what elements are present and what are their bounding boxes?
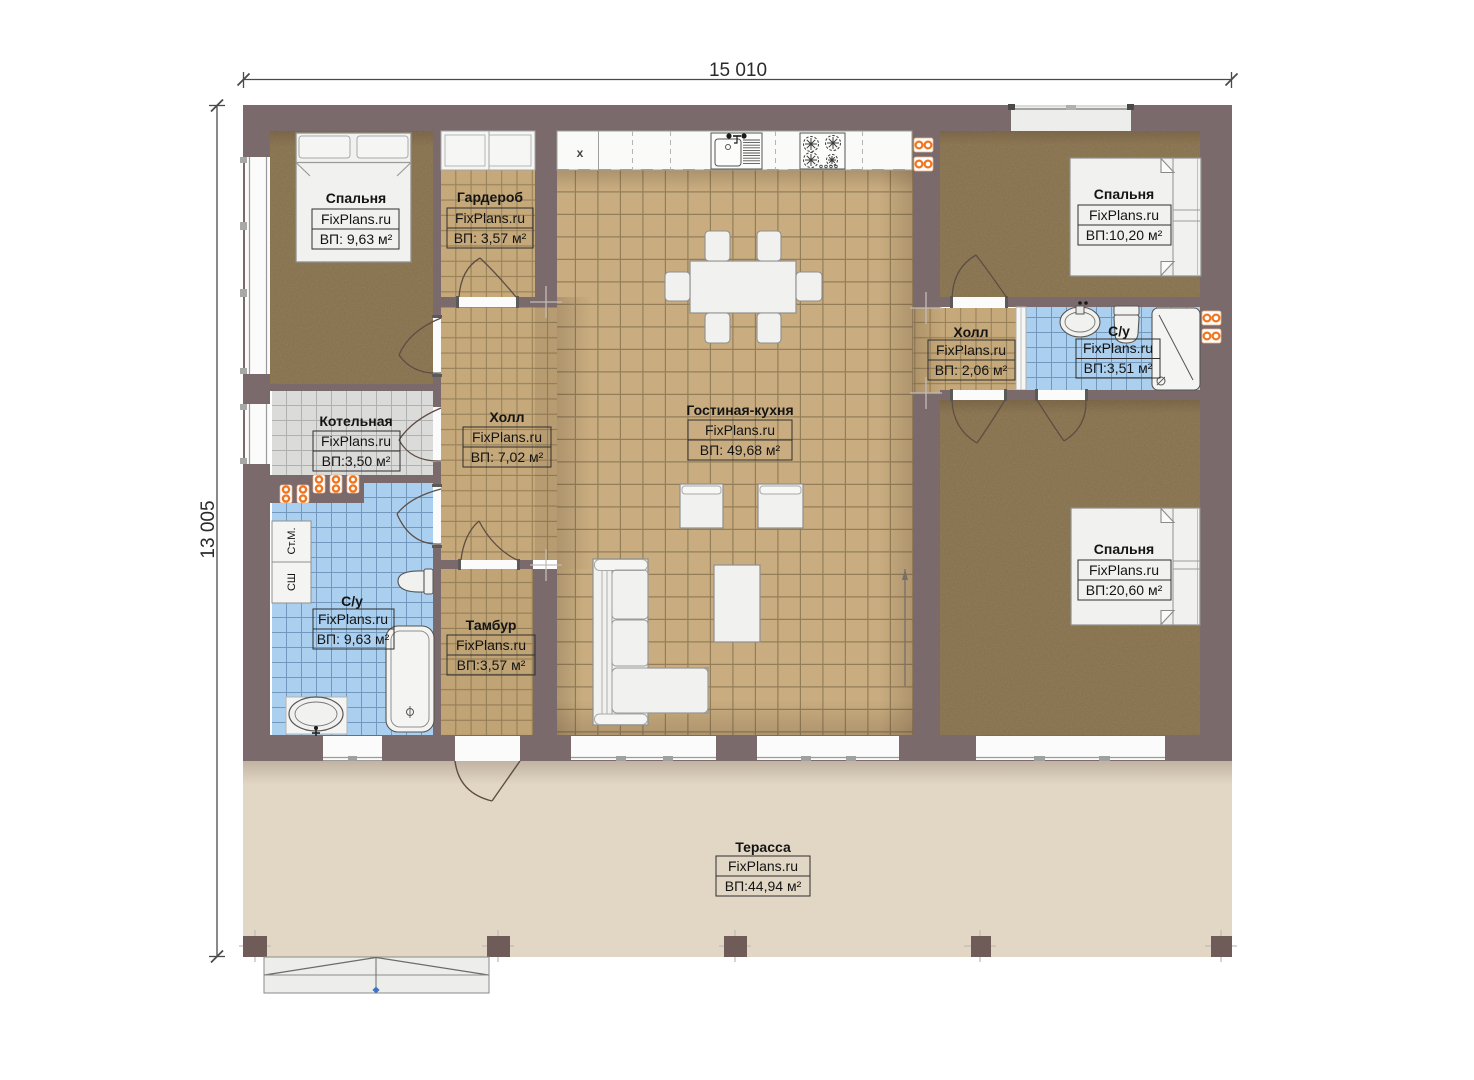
svg-text:FixPlans.ru: FixPlans.ru	[936, 342, 1006, 358]
svg-text:FixPlans.ru: FixPlans.ru	[321, 211, 391, 227]
svg-text:ВП:3,50 м²: ВП:3,50 м²	[322, 453, 391, 469]
svg-text:FixPlans.ru: FixPlans.ru	[455, 210, 525, 226]
svg-text:С/у: С/у	[341, 593, 363, 609]
svg-text:FixPlans.ru: FixPlans.ru	[318, 611, 388, 627]
svg-text:15 010: 15 010	[709, 60, 767, 81]
svg-text:Холл: Холл	[489, 409, 524, 425]
svg-text:ВП:44,94 м²: ВП:44,94 м²	[725, 878, 802, 894]
svg-text:ВП: 9,63 м²: ВП: 9,63 м²	[320, 231, 393, 247]
svg-text:Терасса: Терасса	[735, 839, 791, 855]
svg-text:ВП: 9,63 м²: ВП: 9,63 м²	[317, 631, 390, 647]
svg-text:FixPlans.ru: FixPlans.ru	[705, 422, 775, 438]
svg-text:ВП:3,51 м²: ВП:3,51 м²	[1084, 360, 1153, 376]
svg-text:Спальня: Спальня	[326, 190, 386, 206]
svg-text:Ст.М.: Ст.М.	[286, 527, 298, 554]
svg-text:ВП:3,57 м²: ВП:3,57 м²	[457, 657, 526, 673]
svg-text:FixPlans.ru: FixPlans.ru	[1089, 207, 1159, 223]
svg-text:FixPlans.ru: FixPlans.ru	[1089, 562, 1159, 578]
svg-text:СШ: СШ	[286, 573, 298, 591]
svg-text:С/у: С/у	[1108, 323, 1130, 339]
svg-text:x: x	[577, 146, 584, 160]
svg-text:ВП:10,20 м²: ВП:10,20 м²	[1086, 227, 1163, 243]
svg-text:Холл: Холл	[953, 324, 988, 340]
svg-text:ВП: 2,06 м²: ВП: 2,06 м²	[935, 362, 1008, 378]
svg-text:ВП:20,60 м²: ВП:20,60 м²	[1086, 582, 1163, 598]
svg-text:Гардероб: Гардероб	[457, 189, 524, 205]
svg-text:ВП: 49,68 м²: ВП: 49,68 м²	[700, 442, 781, 458]
svg-text:FixPlans.ru: FixPlans.ru	[472, 429, 542, 445]
svg-text:Гостиная-кухня: Гостиная-кухня	[686, 402, 793, 418]
svg-text:FixPlans.ru: FixPlans.ru	[456, 637, 526, 653]
svg-text:13 005: 13 005	[198, 500, 219, 558]
svg-text:ВП: 7,02 м²: ВП: 7,02 м²	[471, 449, 544, 465]
svg-text:FixPlans.ru: FixPlans.ru	[1083, 340, 1153, 356]
svg-text:FixPlans.ru: FixPlans.ru	[728, 858, 798, 874]
svg-text:Котельная: Котельная	[319, 413, 392, 429]
svg-text:ВП: 3,57 м²: ВП: 3,57 м²	[454, 230, 527, 246]
svg-text:Спальня: Спальня	[1094, 186, 1154, 202]
svg-text:FixPlans.ru: FixPlans.ru	[321, 433, 391, 449]
svg-text:Тамбур: Тамбур	[466, 617, 517, 633]
svg-text:Спальня: Спальня	[1094, 541, 1154, 557]
